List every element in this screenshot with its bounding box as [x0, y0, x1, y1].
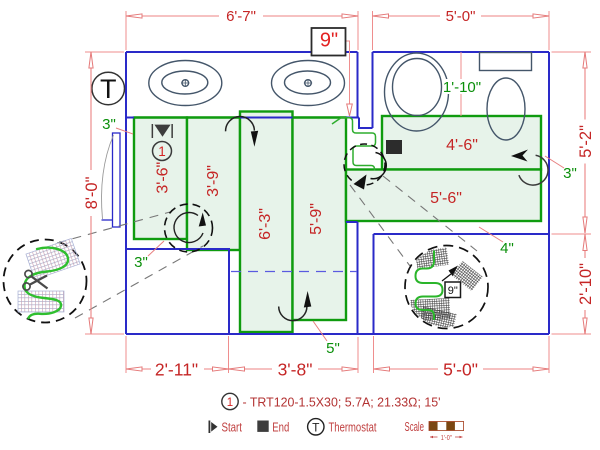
svg-text:5'-2": 5'-2" — [577, 125, 595, 158]
svg-text:Thermostat: Thermostat — [329, 419, 377, 434]
svg-text:2'-11": 2'-11" — [155, 359, 198, 379]
svg-text:- TRT120-1.5X30; 5.7A; 21.33Ω;: - TRT120-1.5X30; 5.7A; 21.33Ω; 15' — [243, 395, 441, 410]
svg-text:4": 4" — [500, 240, 514, 257]
svg-text:5": 5" — [326, 340, 340, 357]
svg-text:5'-0": 5'-0" — [443, 359, 478, 379]
svg-text:3": 3" — [102, 116, 116, 133]
svg-text:6'-3": 6'-3" — [257, 208, 274, 240]
svg-text:Scale: Scale — [405, 419, 425, 434]
svg-text:1'-10": 1'-10" — [443, 79, 481, 96]
svg-text:T: T — [312, 420, 320, 434]
svg-text:4'-6": 4'-6" — [446, 137, 478, 154]
svg-text:5'-9": 5'-9" — [308, 203, 325, 235]
svg-text:1'-0": 1'-0" — [441, 435, 452, 442]
svg-text:5'-0": 5'-0" — [446, 8, 476, 25]
svg-text:3'-6": 3'-6" — [154, 162, 171, 194]
svg-text:3": 3" — [134, 254, 148, 271]
svg-text:1: 1 — [158, 144, 166, 159]
svg-text:6'-7": 6'-7" — [226, 8, 256, 25]
svg-text:8'-0": 8'-0" — [83, 176, 101, 209]
svg-text:End: End — [272, 419, 289, 434]
svg-text:3": 3" — [563, 165, 577, 182]
svg-text:9": 9" — [448, 285, 458, 297]
svg-text:T: T — [100, 74, 117, 104]
svg-text:3'-8": 3'-8" — [278, 359, 313, 379]
svg-text:2'-10": 2'-10" — [577, 263, 595, 305]
svg-text:5'-6": 5'-6" — [430, 190, 462, 207]
svg-text:3'-9": 3'-9" — [205, 165, 222, 197]
svg-text:1: 1 — [227, 397, 233, 409]
svg-text:Start: Start — [222, 419, 243, 434]
svg-text:9": 9" — [320, 30, 338, 52]
